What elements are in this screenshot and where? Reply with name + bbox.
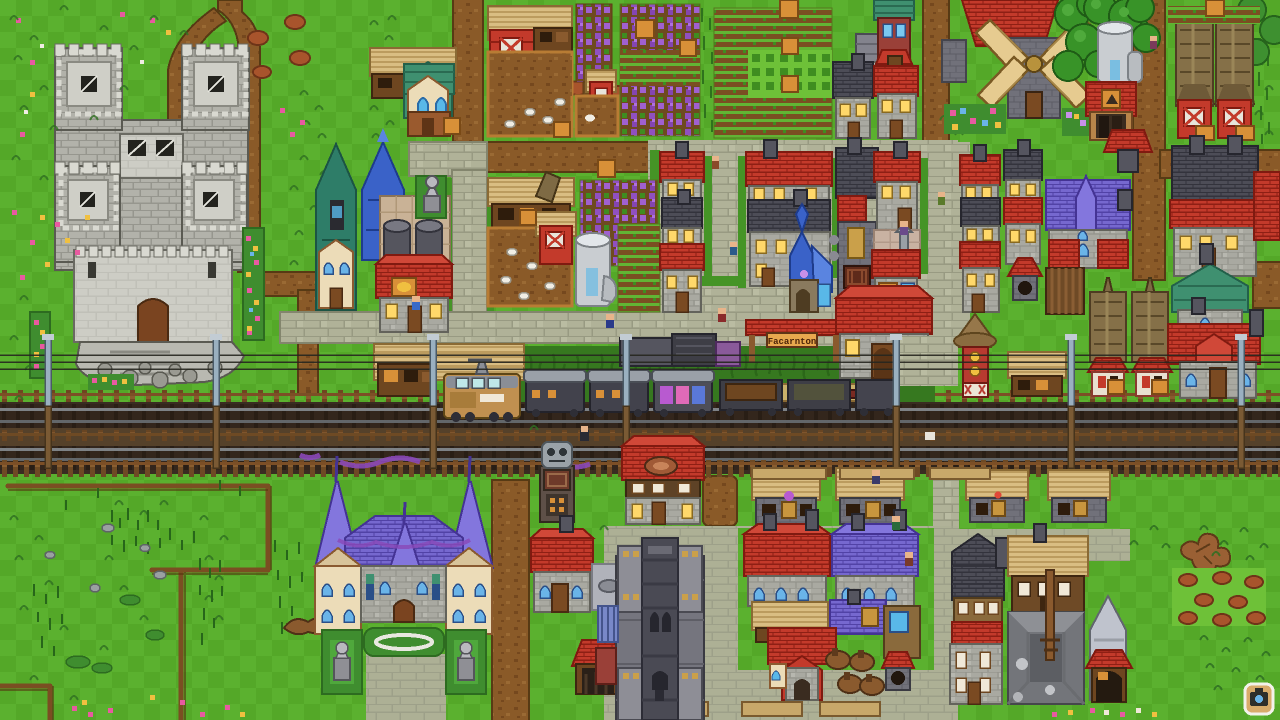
svg-text:Facarnton: Facarnton: [768, 337, 817, 347]
